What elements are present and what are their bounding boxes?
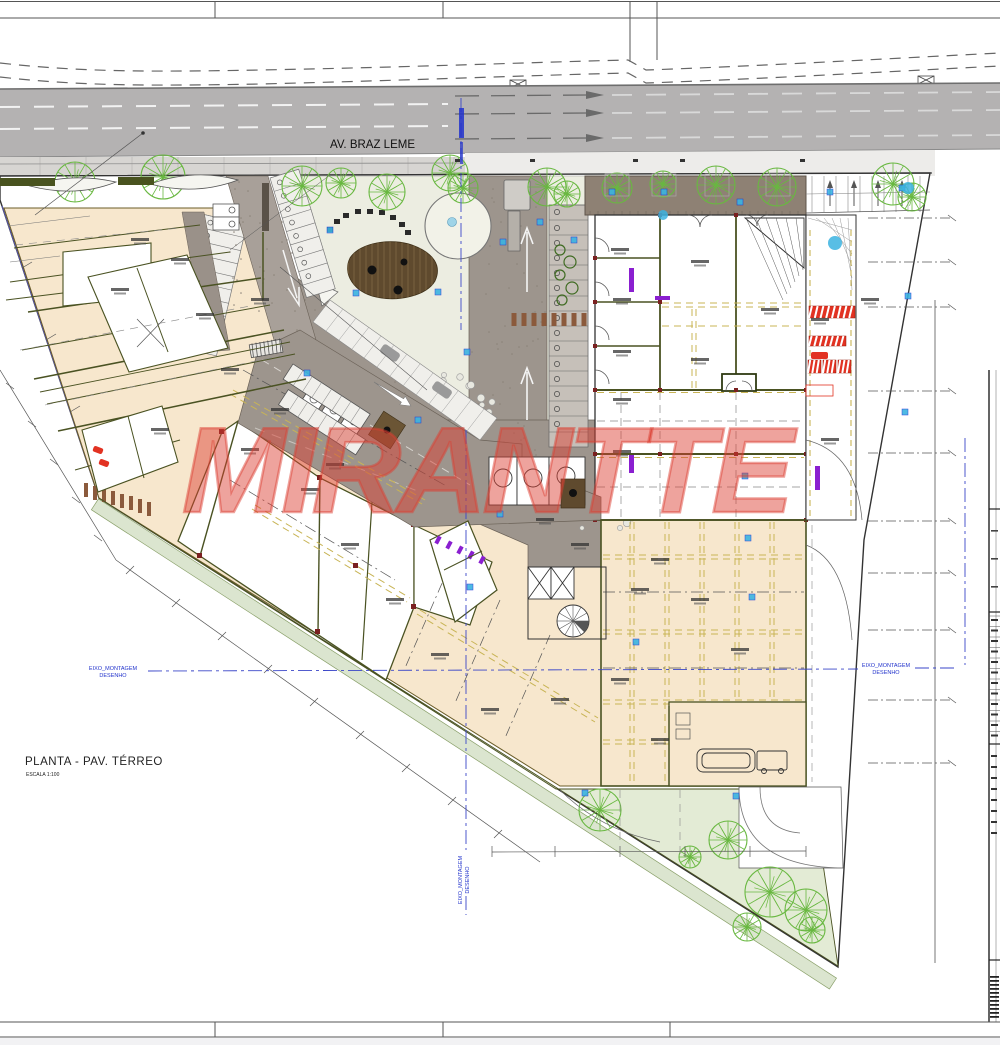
svg-text:DESENHO: DESENHO [465,866,471,894]
svg-text:EIXO_MONTAGEM: EIXO_MONTAGEM [458,855,464,904]
svg-text:EIXO_MONTAGEM: EIXO_MONTAGEM [89,666,138,672]
svg-text:PLANTA - PAV. TÉRREO: PLANTA - PAV. TÉRREO [25,755,163,768]
svg-text:DESENHO: DESENHO [872,670,900,676]
svg-text:ESCALA 1:100: ESCALA 1:100 [26,772,60,778]
svg-text:MIRANTTE: MIRANTTE [182,402,798,538]
svg-text:DESENHO: DESENHO [99,673,127,679]
svg-text:EIXO_MONTAGEM: EIXO_MONTAGEM [862,663,911,669]
svg-text:AV. BRAZ LEME: AV. BRAZ LEME [330,139,415,151]
